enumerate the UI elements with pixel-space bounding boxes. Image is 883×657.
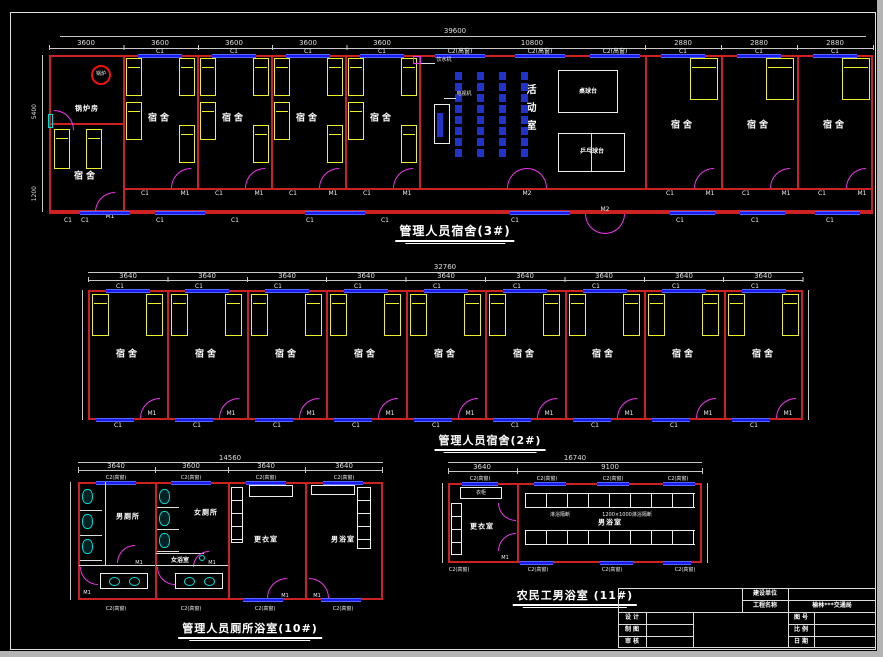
room-label: 宿舍 [672, 351, 696, 360]
bed-symbol [146, 294, 163, 336]
stall-partition [157, 529, 179, 530]
wall [247, 290, 249, 420]
window-label: C2(高窗) [106, 607, 127, 612]
dim-label: 3600 [299, 40, 317, 47]
window-label: C1 [156, 218, 164, 224]
window-bar [80, 211, 130, 215]
window-bar [138, 54, 182, 58]
stall-partition [80, 560, 102, 561]
bed-symbol [782, 294, 799, 336]
wall [406, 290, 408, 420]
dim-label: 3640 [119, 273, 137, 280]
wall [644, 290, 646, 420]
room-label: 宿舍 [354, 351, 378, 360]
bed-symbol [251, 294, 268, 336]
window-label: C1 [231, 218, 239, 224]
room-label: 男浴室 [331, 537, 355, 544]
dim-label: 3640 [754, 273, 772, 280]
wall [565, 290, 567, 420]
bed-symbol [348, 102, 364, 140]
room-label: 宿舍 [747, 122, 771, 131]
entrance-door-arc [585, 214, 625, 234]
window-label: C1 [273, 423, 281, 429]
window-label: C1 [818, 191, 826, 197]
window-label: C1 [591, 423, 599, 429]
toilet-icon [82, 539, 93, 554]
tv-icon [437, 113, 443, 137]
bed-symbol [171, 294, 188, 336]
water-dispenser-icon [413, 56, 421, 64]
bed-symbol [126, 58, 142, 96]
bed-symbol [489, 294, 506, 336]
room-label: 更衣室 [470, 524, 494, 531]
window-bar [503, 289, 547, 293]
bed-symbol [225, 294, 242, 336]
shelf-symbol [311, 485, 355, 495]
wall [155, 482, 157, 600]
dim-label: 2880 [674, 40, 692, 47]
room-label: 女浴室 [171, 558, 189, 564]
window-bar [600, 561, 633, 565]
room-label: 宿舍 [195, 351, 219, 360]
window-label: C1 [193, 423, 201, 429]
dim-label: 2880 [750, 40, 768, 47]
wardrobe-label: 衣柜 [476, 491, 486, 496]
door-label: M1 [307, 411, 316, 417]
partition-wall [156, 565, 228, 566]
room-label: 宿舍 [370, 115, 394, 124]
window-label: C2(高窗) [255, 607, 276, 612]
room-label: 男浴室 [598, 520, 622, 527]
dim-label: 3640 [516, 273, 534, 280]
wall [271, 55, 273, 188]
grid-line [788, 624, 876, 625]
door-label: M1 [545, 411, 554, 417]
wall [517, 483, 519, 563]
window-bar [520, 561, 553, 565]
water-dispenser-label: 饮水机 [436, 58, 451, 63]
shower-stalls [357, 487, 371, 549]
window-label: C1 [432, 423, 440, 429]
window-label: C1 [114, 423, 122, 429]
window-label: C2(高窗) [675, 568, 696, 573]
shower-partition-label: 淋浴隔断 [550, 513, 570, 518]
dim-label: 3600 [373, 40, 391, 47]
bed-symbol [179, 125, 195, 163]
dim-label: 14560 [219, 455, 241, 462]
window-bar [265, 289, 309, 293]
bed-symbol [200, 58, 216, 96]
dim-label: 3600 [151, 40, 169, 47]
bed-symbol [253, 125, 269, 163]
dim-label: 16740 [564, 455, 586, 462]
leader-line [444, 98, 456, 99]
tick [517, 468, 518, 474]
wall [305, 482, 307, 600]
window-label: C2(高窗) [528, 568, 549, 573]
dim-line [442, 483, 443, 563]
window-bar [573, 418, 611, 422]
table-label: 桌球台 [579, 89, 597, 95]
room-label: 宿舍 [275, 351, 299, 360]
bed-symbol [200, 102, 216, 140]
window-bar [286, 54, 330, 58]
window-label: C1 [81, 218, 89, 224]
wall [645, 55, 647, 188]
grid-line [693, 612, 694, 648]
room-label: 宿舍 [513, 351, 537, 360]
window-bar [740, 211, 785, 215]
wall [724, 290, 726, 420]
window-bar [652, 418, 690, 422]
room-label: 宿舍 [296, 115, 320, 124]
wall [326, 290, 328, 420]
dim-label: 3600 [182, 463, 200, 470]
sink-icon [109, 577, 120, 586]
shower-stalls [525, 530, 695, 545]
window-bar [510, 211, 570, 215]
project-label: 工程名称 [753, 603, 777, 609]
dim-label: 32760 [434, 264, 456, 271]
window-bar [583, 289, 627, 293]
floor-plan-4: 16740 3640 9100 C2(高窗) C2(高窗) C2(高窗) C2(… [435, 455, 730, 610]
bed-symbol [126, 102, 142, 140]
shelf-symbol [249, 485, 293, 497]
partition-wall [79, 565, 155, 566]
door-label: M1 [313, 594, 321, 599]
dim-line [60, 36, 866, 37]
bed-symbol [179, 58, 195, 96]
bed-symbol [305, 294, 322, 336]
table-label: 乒乓球台 [580, 149, 604, 155]
grid-line [788, 588, 789, 648]
toilet-icon [82, 514, 93, 529]
window-label: C2(高窗) [449, 568, 470, 573]
bed-symbol [401, 125, 417, 163]
window-bar [255, 418, 293, 422]
shower-stalls [525, 493, 695, 508]
window-bar [171, 481, 211, 485]
dim-label: 9100 [601, 464, 619, 471]
window-bar [662, 289, 706, 293]
door-label: M1 [501, 556, 509, 561]
window-label: C1 [676, 218, 684, 224]
check-label: 审 核 [625, 639, 639, 645]
dim-label: 2880 [826, 40, 844, 47]
tick [702, 468, 703, 474]
room-label: 宿舍 [74, 173, 98, 182]
dim-label: 3640 [107, 463, 125, 470]
dim-label: 3640 [278, 273, 296, 280]
bed-symbol [410, 294, 427, 336]
toilet-icon [82, 489, 93, 504]
window-bar [96, 418, 134, 422]
wall [797, 55, 799, 188]
dim-line [70, 482, 71, 600]
window-label: C1 [306, 218, 314, 224]
dim-line [78, 470, 383, 471]
door-label: M1 [704, 411, 713, 417]
bed-symbol [253, 58, 269, 96]
dim-label: 3640 [437, 273, 455, 280]
bed-symbol [569, 294, 586, 336]
toilet-icon [159, 511, 170, 526]
window-bar [742, 289, 786, 293]
corridor-wall [123, 188, 873, 190]
stall-partition [80, 535, 102, 536]
door-label: M1 [208, 561, 216, 566]
room-label: 锅炉房 [75, 106, 99, 113]
dim-label: 10800 [521, 40, 543, 47]
bed-symbol [842, 58, 870, 100]
stall-partition [157, 551, 179, 552]
chair-column [521, 72, 528, 160]
tick [78, 467, 79, 473]
wall [721, 55, 723, 188]
cad-canvas: { "sheet": {"bg": "#000000", "frame": "#… [0, 0, 883, 657]
dim-label: 3640 [357, 273, 375, 280]
window-bar [663, 482, 695, 486]
scale-label: 比 例 [794, 627, 808, 633]
wall [228, 482, 230, 600]
window-bar [175, 418, 213, 422]
floor-plan-2: 32760 3640 3640 3640 3640 3640 3640 3640… [80, 260, 825, 455]
dim-label: 3640 [675, 273, 693, 280]
door-label: M2 [601, 207, 610, 213]
door-label: M1 [466, 411, 475, 417]
door-label: M1 [83, 591, 91, 596]
title-block-border [618, 588, 876, 648]
window-bar [212, 54, 256, 58]
grid-line [618, 612, 876, 613]
bed-symbol [384, 294, 401, 336]
bed-symbol [86, 129, 102, 169]
draft-label: 制 图 [625, 627, 639, 633]
window-bar [732, 418, 770, 422]
partition-wall [105, 482, 106, 566]
window-label: C2(高窗) [181, 607, 202, 612]
dim-line [448, 471, 702, 472]
room-label: 宿舍 [823, 122, 847, 131]
grid-line [788, 636, 876, 637]
bed-symbol [623, 294, 640, 336]
door-label: M1 [148, 411, 157, 417]
grid-line [742, 600, 876, 601]
dim-line [82, 290, 83, 420]
wall [345, 55, 347, 188]
tv-label: 电视机 [456, 92, 471, 97]
shower-partition-label: 1200×1000淋浴隔断 [602, 513, 652, 518]
window-edge-right [877, 0, 883, 657]
sink-counter [175, 573, 223, 589]
door-label: M1 [135, 561, 143, 566]
window-label: C2(高窗) [333, 607, 354, 612]
window-label: C1 [352, 423, 360, 429]
window-label: C1 [363, 191, 371, 197]
door-label: M1 [386, 411, 395, 417]
bed-symbol [690, 58, 718, 100]
grid-line [646, 612, 647, 648]
window-label: C1 [742, 191, 750, 197]
door-label: M1 [227, 411, 236, 417]
dim-label: 3640 [335, 463, 353, 470]
bed-symbol [274, 58, 290, 96]
locker-column [451, 503, 462, 555]
room-label: 宿舍 [434, 351, 458, 360]
plan-title: 管理人员宿舍(3#) [395, 222, 514, 242]
window-edge-bottom [0, 651, 883, 657]
window-bar [534, 482, 566, 486]
window-bar [414, 418, 452, 422]
dim-label: 3640 [473, 464, 491, 471]
bed-symbol [728, 294, 745, 336]
dim-label: 3600 [225, 40, 243, 47]
window-bar [670, 211, 715, 215]
stall-partition [80, 510, 102, 511]
window-bar [424, 289, 468, 293]
dim-line [42, 55, 43, 212]
dim-label: 3600 [77, 40, 95, 47]
dim-label: 1200 [32, 186, 38, 201]
tick [382, 467, 383, 473]
grid-line [618, 624, 693, 625]
window-bar [493, 418, 531, 422]
wall [419, 55, 421, 188]
door-label: M1 [255, 191, 264, 197]
wall [197, 55, 199, 188]
sink-icon [129, 577, 140, 586]
window-bar [106, 289, 150, 293]
window-label: C1 [64, 218, 72, 224]
window-bar [663, 561, 691, 565]
door-label: M1 [403, 191, 412, 197]
window-bar [96, 481, 136, 485]
chair-column [477, 72, 484, 160]
room-label: 宿舍 [752, 351, 776, 360]
room-label: 女厕所 [194, 510, 218, 517]
window-bar [321, 598, 361, 602]
tick [228, 467, 229, 473]
door-label: M1 [181, 191, 190, 197]
door-label: M1 [784, 411, 793, 417]
window-label: C1 [666, 191, 674, 197]
window-bar [305, 211, 365, 215]
tick [155, 467, 156, 473]
toilet-icon [159, 533, 170, 548]
plan-title: 管理人员厕所浴室(10#) [178, 620, 322, 639]
locker-column [231, 487, 243, 543]
grid-line [814, 612, 815, 648]
room-label: 更衣室 [254, 537, 278, 544]
bed-symbol [543, 294, 560, 336]
vent-icon [48, 114, 53, 128]
room-label: 宿舍 [222, 115, 246, 124]
door-label: M1 [625, 411, 634, 417]
room-label: 宿舍 [671, 122, 695, 131]
sink-counter [100, 573, 148, 589]
room-label: 宿舍 [116, 351, 140, 360]
bed-symbol [464, 294, 481, 336]
window-label: C1 [826, 218, 834, 224]
room-label: 男厕所 [116, 514, 140, 521]
project-value: 榆林***交通局 [812, 603, 851, 609]
dim-label: 5400 [32, 104, 38, 119]
window-label: C1 [511, 423, 519, 429]
grid-line [618, 636, 693, 637]
window-bar [462, 482, 498, 486]
window-bar [155, 211, 205, 215]
door-label: M1 [858, 191, 867, 197]
window-bar [185, 289, 229, 293]
sink-icon [184, 577, 195, 586]
floor-plan-3: 14560 3640 3600 3640 3640 C2(高窗) C2(高窗) … [65, 455, 400, 645]
bed-symbol [330, 294, 347, 336]
window-label: C1 [670, 423, 678, 429]
wall [167, 290, 169, 420]
figure-no-label: 图 号 [794, 615, 808, 621]
chair-column [455, 72, 462, 160]
window-bar [590, 54, 640, 58]
design-label: 设 计 [625, 615, 639, 621]
stall-partition [157, 507, 179, 508]
sink-icon [204, 577, 215, 586]
leader-line [421, 63, 435, 64]
bed-symbol [327, 58, 343, 96]
title-block: 建设单位 工程名称 榆林***交通局 设 计 制 图 审 核 图 号 比 例 日… [618, 588, 876, 648]
bed-symbol [327, 125, 343, 163]
dim-label: 3640 [595, 273, 613, 280]
wall [485, 290, 487, 420]
door-label: M1 [782, 191, 791, 197]
owner-label: 建设单位 [753, 591, 777, 597]
bed-symbol [648, 294, 665, 336]
window-bar [243, 598, 283, 602]
window-bar [334, 418, 372, 422]
floor-plan-1: 39600 3600 3600 3600 3600 3600 10800 288… [40, 14, 883, 249]
tick [448, 468, 449, 474]
bed-symbol [702, 294, 719, 336]
bed-symbol [92, 294, 109, 336]
date-label: 日 期 [794, 639, 808, 645]
window-label: C1 [289, 191, 297, 197]
window-label: C1 [750, 423, 758, 429]
bed-symbol [274, 102, 290, 140]
bed-symbol [766, 58, 794, 100]
partition-wall [156, 553, 204, 554]
shower-icon [199, 555, 205, 561]
dim-label: 39600 [444, 28, 466, 35]
chair-column [499, 72, 506, 160]
door-label: M1 [329, 191, 338, 197]
room-label: 宿舍 [148, 115, 172, 124]
window-bar [597, 482, 629, 486]
tick [305, 467, 306, 473]
dim-line [707, 483, 708, 563]
door-label: M1 [706, 191, 715, 197]
window-label: C1 [141, 191, 149, 197]
window-label: C1 [215, 191, 223, 197]
window-bar [360, 54, 404, 58]
boiler-label: 锅炉 [96, 72, 106, 77]
plan-title: 管理人员宿舍(2#) [435, 432, 546, 451]
dim-label: 3640 [257, 463, 275, 470]
bed-symbol [54, 129, 70, 169]
window-bar [344, 289, 388, 293]
window-bar [815, 211, 860, 215]
dim-line [808, 290, 809, 420]
window-bar [515, 54, 565, 58]
dim-label: 3640 [198, 273, 216, 280]
